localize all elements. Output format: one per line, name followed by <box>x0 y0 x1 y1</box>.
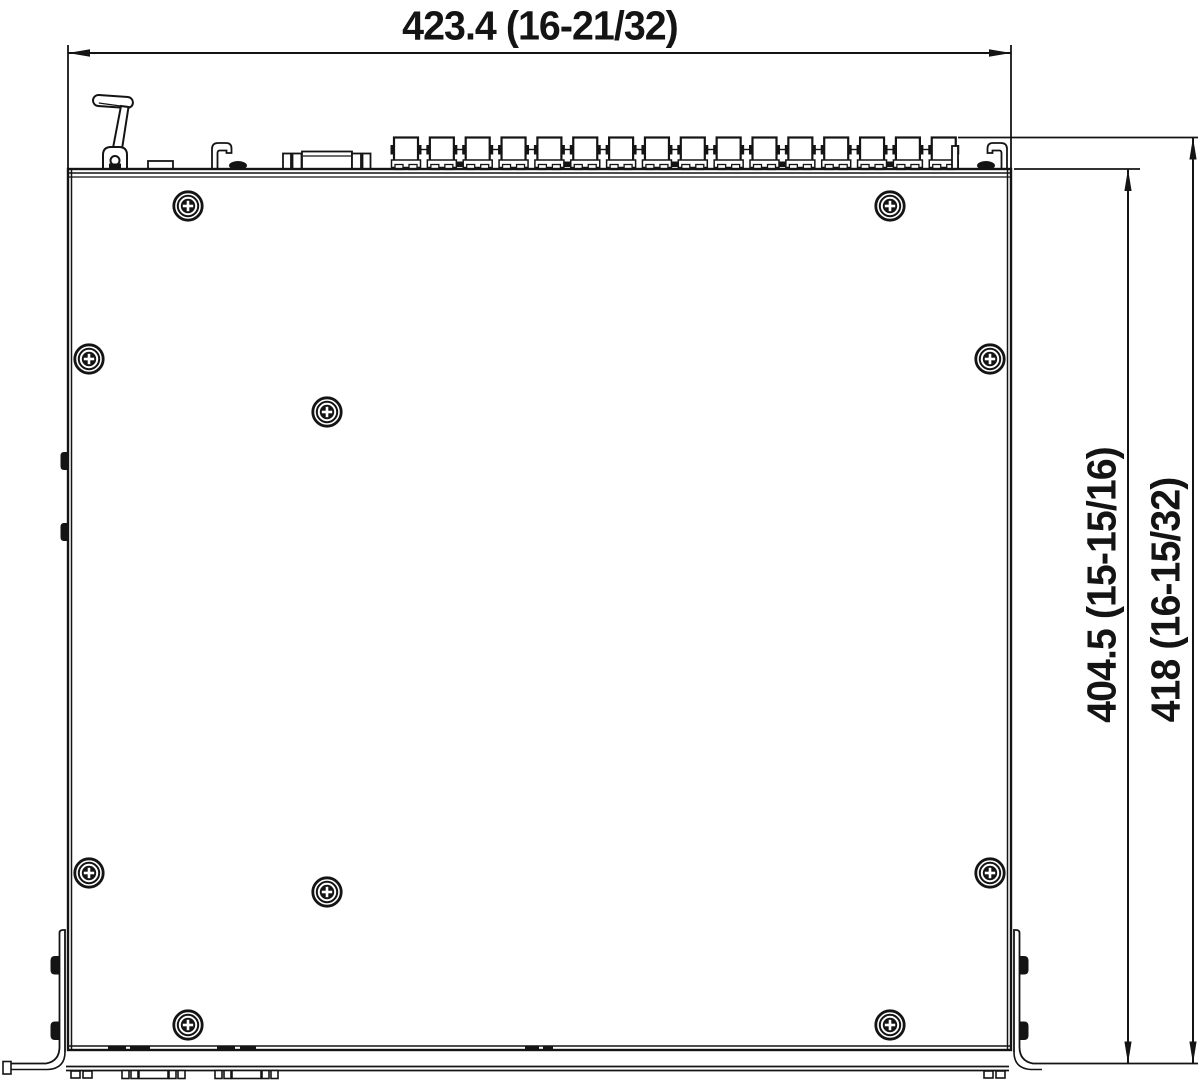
rear-post <box>952 146 958 169</box>
rear-jack <box>677 138 716 170</box>
chassis-screws <box>75 192 1004 1039</box>
rack-ear-left <box>3 930 65 1074</box>
side-bump <box>61 452 69 470</box>
screw-icon <box>313 878 341 906</box>
rear-jack <box>462 138 501 170</box>
rear-jack <box>391 138 430 170</box>
rear-jack <box>534 138 573 170</box>
arrow-left-icon <box>68 49 90 57</box>
rear-jack <box>713 138 752 170</box>
screw-icon <box>313 398 341 426</box>
arrow-down-icon <box>1189 1042 1196 1064</box>
overall-depth-dimension-label: 418 (16-15/32) <box>1143 478 1190 723</box>
screw-icon <box>174 192 202 220</box>
rear-jack <box>892 138 931 170</box>
arrow-right-icon <box>989 49 1011 57</box>
screw-icon <box>876 1011 904 1039</box>
side-bump <box>61 523 69 541</box>
screw-icon <box>976 345 1004 373</box>
ear-end-tab <box>3 1062 11 1075</box>
rear-jack <box>570 138 609 170</box>
rack-ear-right <box>1014 930 1198 1070</box>
screw-icon <box>174 1011 202 1039</box>
rear-jack <box>785 138 824 170</box>
screw-icon <box>75 345 103 373</box>
rear-jack <box>821 138 860 170</box>
rear-jack-row <box>391 138 960 170</box>
screw-icon <box>75 859 103 887</box>
arrow-up-icon <box>1124 169 1131 191</box>
rear-jack <box>749 138 788 170</box>
dimension-drawing-canvas: 423.4 (16-21/32) 404.5 (15-15/16) 418 (1… <box>0 0 1200 1080</box>
ear-bump <box>51 956 60 975</box>
dsub-connector <box>283 152 371 170</box>
width-dimension-label: 423.4 (16-21/32) <box>402 3 678 50</box>
rear-jack <box>606 138 645 170</box>
rear-jack <box>498 138 537 170</box>
rear-jack <box>426 138 465 170</box>
chassis-depth-dimension-label: 404.5 (15-15/16) <box>1079 447 1126 723</box>
arrow-up-icon <box>1189 138 1196 160</box>
antenna-icon <box>93 95 134 169</box>
rear-panel-items <box>93 95 1007 170</box>
dimension-drawing <box>0 0 1200 1080</box>
arrow-down-icon <box>1124 1042 1131 1064</box>
ear-bump <box>51 1022 60 1041</box>
screw-icon <box>876 192 904 220</box>
rear-jack <box>857 138 896 170</box>
chassis-outline <box>61 169 1012 1050</box>
front-connector <box>215 1071 278 1079</box>
screw-icon <box>976 859 1004 887</box>
cable-hook-icon <box>212 143 232 169</box>
ear-bump <box>1020 956 1029 975</box>
ear-bump <box>1020 1022 1029 1041</box>
front-connector <box>122 1071 185 1079</box>
rear-jack <box>641 138 680 170</box>
